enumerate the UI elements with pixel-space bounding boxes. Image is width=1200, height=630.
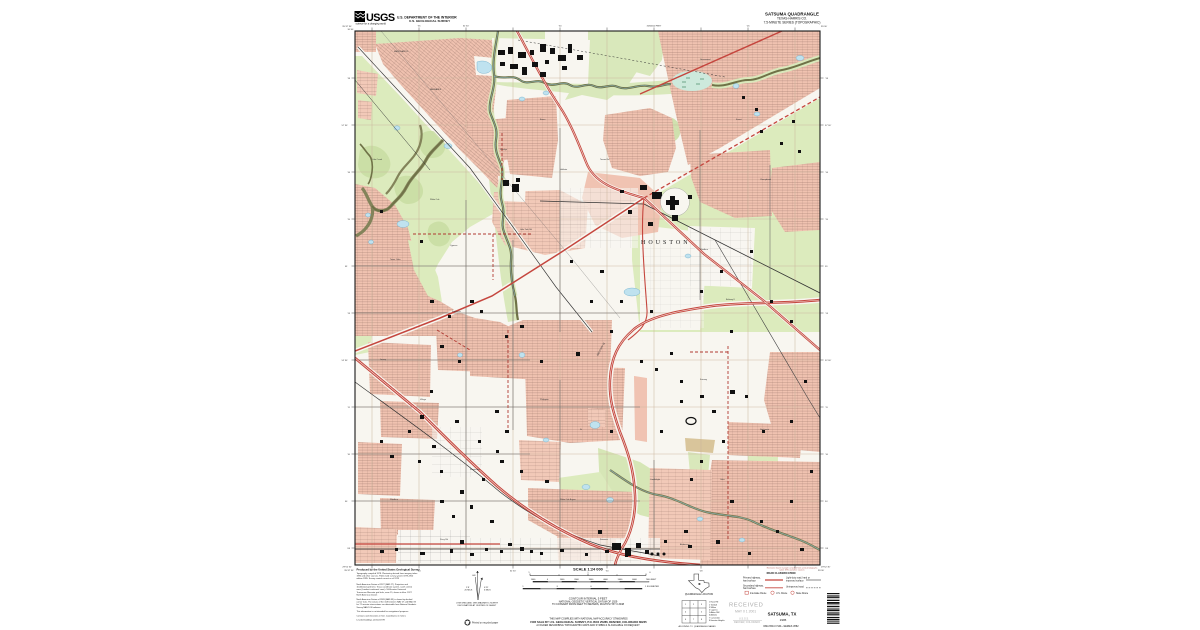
- svg-text:Jersey: Jersey: [380, 359, 386, 361]
- svg-text:1 KILOMETER: 1 KILOMETER: [645, 586, 659, 588]
- svg-text:Transverse Mercator grid ticks: Transverse Mercator grid ticks, zone 15,…: [357, 591, 413, 594]
- svg-text:Perry Rd: Perry Rd: [440, 539, 448, 541]
- svg-text:Light-duty road, hard or: Light-duty road, hard or: [786, 577, 810, 580]
- svg-text:30°00´: 30°00´: [348, 28, 355, 31]
- svg-text:U.S. GEOLOGICAL SURVEY: U.S. GEOLOGICAL SURVEY: [409, 19, 451, 23]
- svg-text:Secondary highway,: Secondary highway,: [743, 585, 764, 588]
- svg-text:Fairbanks: Fairbanks: [452, 311, 461, 313]
- svg-text:4 Cypress: 4 Cypress: [709, 609, 718, 612]
- svg-text:Unimproved road: Unimproved road: [786, 585, 804, 588]
- svg-text:Primary highway,: Primary highway,: [743, 577, 761, 580]
- svg-text:corner ticks. The values of th: corner ticks. The values of the shift be…: [357, 601, 417, 604]
- svg-text:Senate Ave: Senate Ave: [470, 468, 481, 471]
- svg-text:Oaks: Oaks: [720, 479, 725, 481]
- svg-text:7000 FEET: 7000 FEET: [646, 579, 657, 581]
- svg-text:TO CONVERT FROM FEET TO METERS: TO CONVERT FROM FEET TO METERS, MULTIPLY…: [552, 603, 625, 606]
- svg-text:North American Datum: North American Datum: [357, 593, 378, 596]
- svg-text:50´: 50´: [345, 500, 348, 503]
- svg-text:SATSUMA, TX: SATSUMA, TX: [768, 611, 797, 616]
- svg-text:Beltway 8: Beltway 8: [726, 298, 736, 301]
- svg-text:A FOLDER DESCRIBING TOPOGRAPHI: A FOLDER DESCRIBING TOPOGRAPHIC MAPS AND…: [536, 624, 640, 627]
- svg-text:7 Carverdale: 7 Carverdale: [709, 616, 720, 619]
- svg-text:MAY 0 1 2001: MAY 0 1 2001: [735, 610, 756, 614]
- svg-text:zone (Lambert conformal conic): zone (Lambert conformal conic). 1000-met…: [357, 588, 407, 591]
- svg-text:ROAD CLASSIFICATION: ROAD CLASSIFICATION: [767, 572, 796, 575]
- svg-text:7.5-MINUTE SERIES (TOPOGRAPHIC: 7.5-MINUTE SERIES (TOPOGRAPHIC): [764, 20, 821, 24]
- svg-text:95°30´: 95°30´: [818, 569, 825, 572]
- svg-text:6 MILS: 6 MILS: [484, 590, 491, 592]
- svg-text:Little York Rd: Little York Rd: [520, 228, 532, 231]
- svg-text:hard surface: hard surface: [743, 587, 756, 590]
- svg-text:Candlelight: Candlelight: [650, 478, 660, 481]
- svg-text:UTM GRID AND 1995 MAGNETIC NOR: UTM GRID AND 1995 MAGNETIC NORTH: [456, 602, 498, 605]
- svg-text:Contours and elevations in fee: Contours and elevations in feet. Coordin…: [357, 614, 406, 617]
- svg-text:DENVER, COLORADO: DENVER, COLORADO: [734, 621, 760, 624]
- svg-text:North American Datum of 1983 (: North American Datum of 1983 (NAD 83) is…: [357, 598, 413, 601]
- svg-text:55´: 55´: [345, 265, 348, 268]
- svg-text:Cole Creek: Cole Creek: [372, 159, 382, 161]
- svg-text:hard surface: hard surface: [743, 579, 756, 582]
- svg-text:Village: Village: [420, 399, 427, 401]
- svg-text:for 7.5-minute intersections a: for 7.5-minute intersections are obtaina…: [357, 603, 417, 606]
- svg-text:Greenwood: Greenwood: [700, 59, 710, 61]
- svg-text:1995 and other sources. Public: 1995 and other sources. Public land surv…: [357, 575, 415, 578]
- svg-text:White Oak: White Oak: [430, 198, 439, 201]
- svg-text:QUADRANGLE LOCATION: QUADRANGLE LOCATION: [685, 593, 714, 596]
- svg-text:ADJOINING 7.5´ QUADRANGLE NAME: ADJOINING 7.5´ QUADRANGLE NAMES: [678, 625, 716, 628]
- svg-text:Fairway: Fairway: [700, 379, 707, 381]
- svg-text:edition 1995. Survey control c: edition 1995. Survey control current as …: [357, 577, 400, 580]
- svg-text:3280000 FEET: 3280000 FEET: [647, 26, 662, 28]
- svg-text:DMA 6544 II SW—SERIES V882: DMA 6544 II SW—SERIES V882: [763, 625, 799, 628]
- svg-text:6 Addicks: 6 Addicks: [709, 614, 717, 617]
- svg-text:Produced by the United States: Produced by the United States Geological…: [357, 568, 421, 572]
- svg-text:32´30˝: 32´30˝: [463, 25, 470, 28]
- svg-text:29°52´30˝: 29°52´30˝: [821, 566, 831, 569]
- svg-text:This information is not intend: This information is not intended for nav…: [357, 610, 409, 613]
- svg-text:Forest: Forest: [736, 118, 742, 121]
- svg-text:8 Houston Heights: 8 Houston Heights: [709, 619, 725, 622]
- svg-text:1°8´: 1°8´: [466, 586, 470, 589]
- svg-text:10,000-foot grid ticks: Texas: 10,000-foot grid ticks: Texas coordinate…: [357, 586, 413, 589]
- svg-text:Hollister: Hollister: [560, 168, 568, 171]
- svg-text:DECLINATION AT CENTER OF SHEET: DECLINATION AT CENTER OF SHEET: [458, 604, 497, 607]
- svg-text:32´30˝: 32´30˝: [510, 570, 517, 573]
- svg-text:HOUSTON: HOUSTON: [641, 240, 691, 246]
- svg-text:Printed on recycled paper: Printed on recycled paper: [472, 622, 498, 625]
- svg-text:Breen: Breen: [540, 119, 545, 121]
- svg-text:50´: 50´: [825, 500, 828, 503]
- svg-text:Tanner Rd: Tanner Rd: [600, 159, 609, 161]
- svg-text:57´30˝: 57´30˝: [342, 124, 349, 127]
- svg-text:SCALE 1:24 000: SCALE 1:24 000: [573, 566, 603, 571]
- svg-text:95°30´: 95°30´: [821, 25, 828, 28]
- svg-text:Philippine: Philippine: [540, 399, 550, 401]
- svg-text:Survey NADCON software: Survey NADCON software: [357, 606, 382, 609]
- svg-text:GN: GN: [472, 575, 476, 577]
- svg-text:State Route: State Route: [796, 592, 809, 595]
- svg-text:Topography compiled 1978. Plan: Topography compiled 1978. Planimetry der…: [357, 572, 418, 575]
- svg-text:White Oak Bayou: White Oak Bayou: [560, 498, 576, 501]
- svg-text:0°21´: 0°21´: [484, 586, 489, 589]
- svg-text:55´: 55´: [825, 265, 828, 268]
- svg-text:Satsuma: Satsuma: [600, 538, 609, 541]
- svg-text:52´30˝: 52´30˝: [342, 359, 349, 362]
- svg-text:North American Datum of 1927 (: North American Datum of 1927 (NAD 27). P…: [357, 583, 408, 586]
- svg-text:FAIRBANKS: FAIRBANKS: [430, 88, 442, 91]
- svg-text:5 Aldine NW: 5 Aldine NW: [709, 611, 720, 614]
- svg-text:Cherrybrook: Cherrybrook: [760, 179, 771, 181]
- svg-text:improved surface: improved surface: [786, 579, 804, 582]
- svg-text:Northwest: Northwest: [760, 428, 769, 431]
- svg-text:Alabonson: Alabonson: [680, 543, 689, 546]
- svg-text:20 MILS: 20 MILS: [465, 590, 473, 592]
- svg-text:Rosslyn: Rosslyn: [500, 149, 507, 151]
- svg-text:Leveled buildings omitted 1978: Leveled buildings omitted 1978: [357, 619, 386, 622]
- svg-text:MACKINAW RD: MACKINAW RD: [394, 50, 409, 53]
- svg-text:29°52´30˝: 29°52´30˝: [342, 566, 352, 569]
- svg-text:95°37´30˝: 95°37´30˝: [344, 569, 354, 572]
- svg-text:1995: 1995: [780, 618, 787, 622]
- svg-text:Cypress: Cypress: [450, 245, 457, 247]
- svg-text:52´30˝: 52´30˝: [825, 359, 832, 362]
- svg-text:RECEIVED: RECEIVED: [729, 603, 763, 609]
- svg-text:Tower Oaks: Tower Oaks: [390, 259, 401, 261]
- svg-text:Windfern: Windfern: [700, 249, 708, 251]
- svg-text:95°37´30˝: 95°37´30˝: [342, 25, 352, 28]
- svg-text:U.S. Route: U.S. Route: [776, 592, 788, 595]
- svg-text:57´30˝: 57´30˝: [825, 124, 832, 127]
- svg-text:Windfern: Windfern: [390, 499, 398, 501]
- svg-text:science for a changing world: science for a changing world: [356, 22, 387, 25]
- svg-text:Interstate Route: Interstate Route: [750, 592, 767, 595]
